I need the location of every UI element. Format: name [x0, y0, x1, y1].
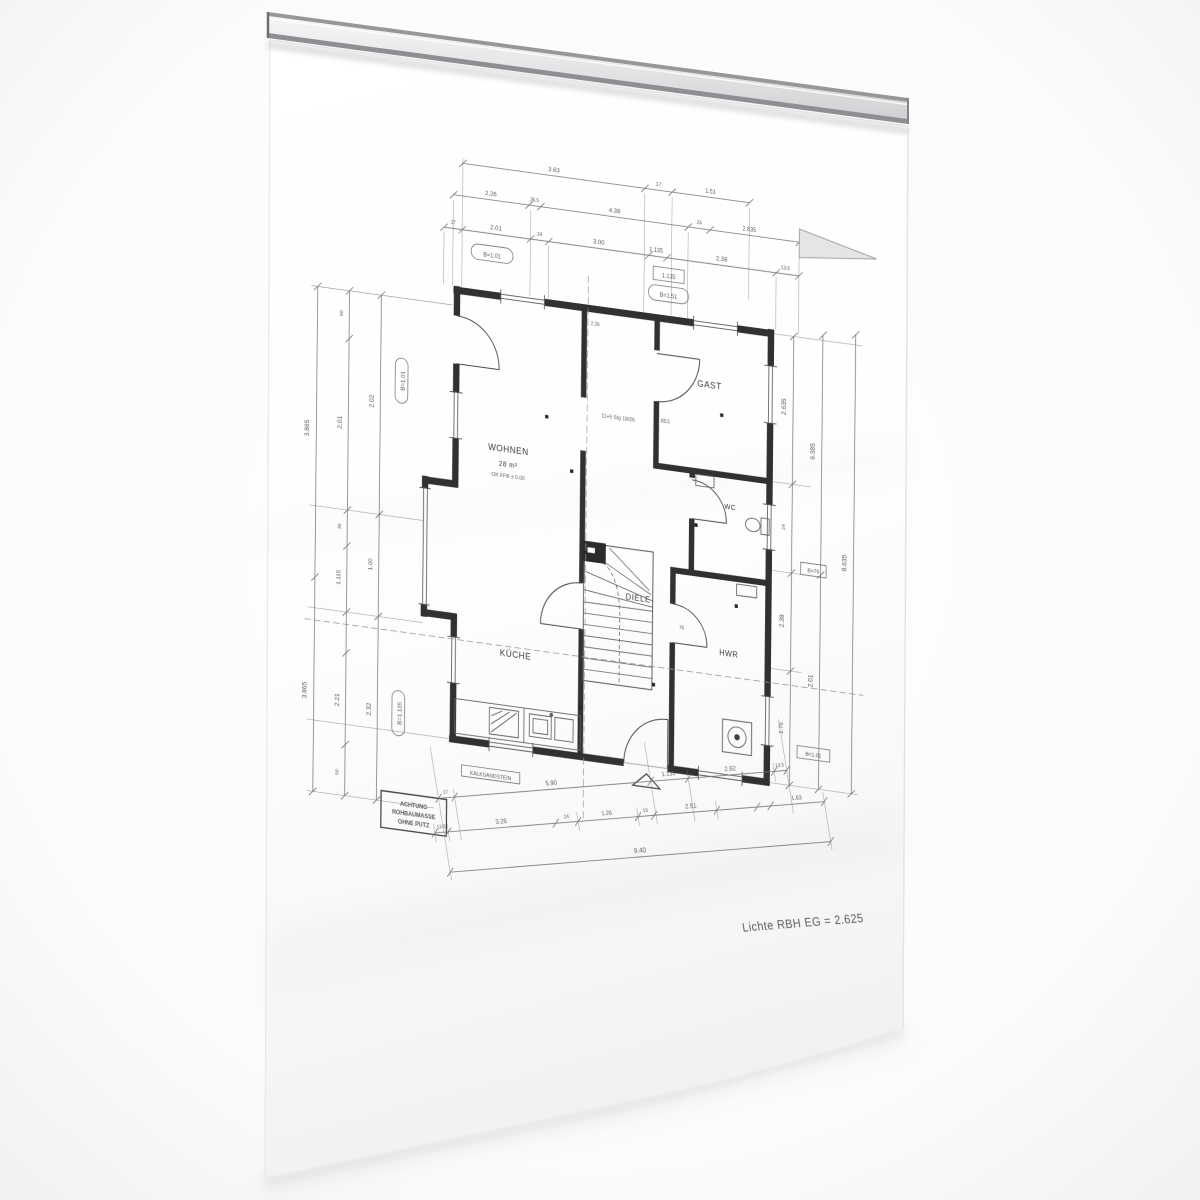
faucet-dot — [550, 713, 553, 716]
dim-label: 1.63 — [791, 795, 802, 802]
window-size-label: B=1.135 — [398, 702, 404, 726]
dim-label: 24 — [537, 232, 542, 239]
dim-label: 50 — [335, 769, 341, 776]
dim-label: 50 — [339, 310, 345, 317]
paper-sheet — [265, 40, 908, 1178]
dim-label-total: 9.40 — [633, 847, 647, 855]
dim-label: 13.5 — [781, 265, 790, 273]
dim-label: 2.635 — [781, 397, 788, 415]
plan-small-dim: 76 — [679, 625, 684, 632]
dim-label: 2.21 — [334, 692, 341, 706]
chimney-flue — [588, 547, 595, 553]
plan-small-dim: 88.5 — [661, 418, 670, 426]
dim-label: 6.385 — [810, 442, 817, 460]
dim-label: 24 — [697, 220, 702, 227]
dim-label: 2.32 — [366, 702, 373, 716]
dim-label: 1.135 — [661, 771, 675, 778]
dim-label: 1.00 — [369, 558, 375, 571]
dim-label: 3.26 — [495, 818, 508, 826]
dim-label: 2.51 — [685, 802, 698, 810]
dim-label: 3.865 — [302, 681, 309, 699]
plan-small-dim: 2.26 — [591, 321, 600, 329]
dim-label: 17 — [656, 182, 662, 189]
dim-label: 24 — [781, 524, 787, 531]
dim-label: 2.01 — [808, 674, 815, 688]
dim-label: 17 — [451, 220, 456, 227]
dim-label: 36 — [337, 523, 343, 530]
photo-of-floorplan-on-wall-rail: 3.63 17 1.51 2.26 36.5 4.38 24 2.635 17 … — [0, 0, 1200, 1200]
dim-label: 13.5 — [436, 824, 446, 831]
photo-canvas: 3.63 17 1.51 2.26 36.5 4.38 24 2.635 17 … — [0, 0, 1200, 1200]
dim-label: 1.115 — [337, 570, 343, 586]
dim-label: 1.26 — [601, 810, 612, 817]
dim-label: 36.5 — [530, 197, 539, 205]
dim-label: 2.62 — [724, 765, 737, 773]
window-size-label: B=1.01 — [401, 371, 407, 391]
dim-label: 2.02 — [369, 394, 376, 408]
dim-label: 5.90 — [545, 779, 558, 787]
dim-label: 8.635 — [841, 554, 848, 572]
dim-label: 2.01 — [337, 415, 344, 429]
dim-label: 13.5 — [775, 762, 785, 769]
dim-label: 2.38 — [779, 613, 786, 627]
dim-label: 3.865 — [304, 419, 311, 437]
